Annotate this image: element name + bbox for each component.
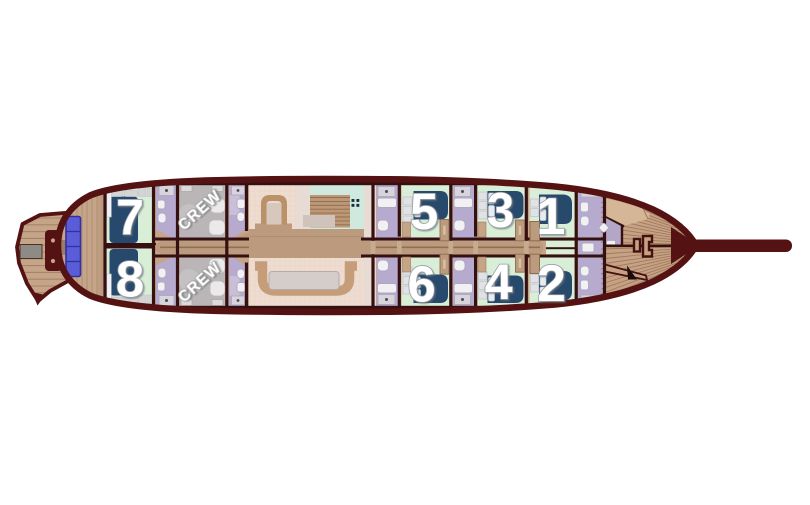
- svg-text:6: 6: [407, 256, 435, 313]
- svg-text:3: 3: [487, 184, 514, 238]
- svg-text:8: 8: [116, 251, 144, 308]
- svg-text:5: 5: [410, 183, 438, 240]
- svg-text:1: 1: [537, 188, 566, 246]
- svg-text:7: 7: [116, 190, 144, 246]
- svg-text:2: 2: [537, 255, 566, 313]
- svg-text:4: 4: [485, 254, 513, 310]
